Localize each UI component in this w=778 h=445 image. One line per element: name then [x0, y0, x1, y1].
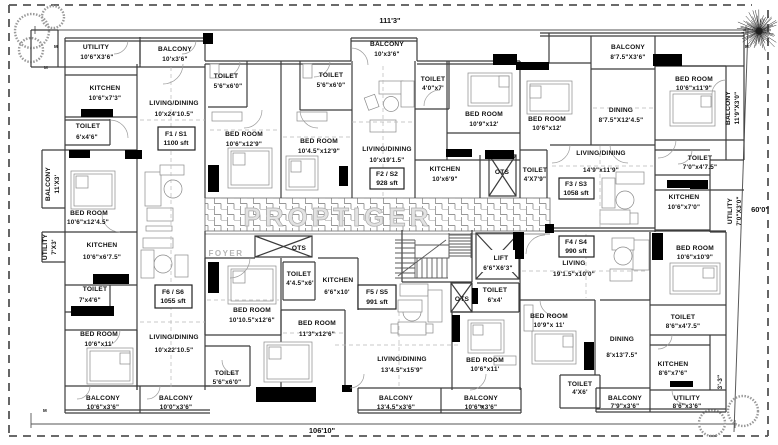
- svg-text:BED ROOM: BED ROOM: [530, 313, 568, 320]
- svg-text:3'-3": 3'-3": [717, 375, 724, 390]
- svg-text:7'x4'6": 7'x4'6": [79, 297, 101, 304]
- svg-text:OTS: OTS: [495, 169, 510, 176]
- svg-text:M: M: [43, 408, 47, 413]
- svg-text:11'3"x12'6": 11'3"x12'6": [299, 331, 335, 338]
- svg-text:BED ROOM: BED ROOM: [80, 331, 118, 338]
- svg-text:BED ROOM: BED ROOM: [233, 307, 271, 314]
- svg-text:10'6"x7'0": 10'6"x7'0": [668, 204, 700, 211]
- svg-text:10'x3'6": 10'x3'6": [162, 56, 188, 63]
- svg-text:10'0"x3'6": 10'0"x3'6": [160, 404, 192, 411]
- svg-text:4'4.5"x6': 4'4.5"x6': [286, 280, 314, 287]
- svg-text:6'x4'6": 6'x4'6": [76, 134, 98, 141]
- svg-text:8'7.5"X3'6": 8'7.5"X3'6": [610, 54, 645, 61]
- svg-text:19'1.5"x10'0": 19'1.5"x10'0": [553, 271, 595, 278]
- svg-text:BALCONY: BALCONY: [608, 395, 642, 402]
- svg-text:1055 sft: 1055 sft: [160, 298, 186, 305]
- svg-text:F6 / S6: F6 / S6: [162, 289, 184, 296]
- svg-text:6'6"x10': 6'6"x10': [324, 289, 350, 296]
- svg-text:UTILITY: UTILITY: [674, 395, 701, 402]
- svg-text:10'6"x12'4.5": 10'6"x12'4.5": [67, 219, 109, 226]
- svg-text:KITCHEN: KITCHEN: [87, 242, 118, 249]
- svg-text:KITCHEN: KITCHEN: [323, 277, 354, 284]
- svg-text:KITCHEN: KITCHEN: [669, 194, 700, 201]
- svg-text:TOILET: TOILET: [483, 287, 508, 294]
- svg-text:TOILET: TOILET: [76, 123, 101, 130]
- svg-text:10'6"X3'6": 10'6"X3'6": [80, 54, 113, 61]
- svg-text:BALCONY: BALCONY: [464, 395, 498, 402]
- svg-text:8'7.5"X12'4.5": 8'7.5"X12'4.5": [599, 117, 644, 124]
- svg-text:5'6"x6'0": 5'6"x6'0": [214, 83, 243, 90]
- svg-text:10'6"x11': 10'6"x11': [471, 366, 500, 373]
- svg-text:LIVING/DINING: LIVING/DINING: [149, 100, 199, 107]
- svg-text:14'9"x11'9": 14'9"x11'9": [583, 167, 619, 174]
- svg-text:10'6"x6'7.5": 10'6"x6'7.5": [83, 254, 121, 261]
- svg-text:KITCHEN: KITCHEN: [90, 85, 121, 92]
- svg-text:10'9"x 11': 10'9"x 11': [534, 322, 565, 329]
- svg-text:60'0": 60'0": [751, 205, 769, 214]
- svg-text:OTS: OTS: [292, 245, 307, 252]
- svg-text:1100 sft: 1100 sft: [164, 140, 190, 147]
- svg-text:BALCONY: BALCONY: [159, 395, 193, 402]
- svg-text:F3 / S3: F3 / S3: [565, 181, 587, 188]
- svg-text:106'10": 106'10": [309, 426, 336, 435]
- svg-text:LIVING/DINING: LIVING/DINING: [149, 334, 199, 341]
- svg-text:DINING: DINING: [609, 107, 633, 114]
- svg-text:LIVING/DINING: LIVING/DINING: [362, 146, 412, 153]
- svg-text:4'0"x7': 4'0"x7': [422, 85, 444, 92]
- svg-text:F1 / S1: F1 / S1: [165, 131, 187, 138]
- svg-text:UTILITY: UTILITY: [727, 197, 734, 224]
- svg-text:5'6"x6'0": 5'6"x6'0": [317, 82, 346, 89]
- svg-text:OTS: OTS: [455, 296, 470, 303]
- svg-text:7'0"X3'0": 7'0"X3'0": [736, 196, 743, 225]
- svg-text:BED ROOM: BED ROOM: [298, 320, 336, 327]
- svg-text:FOYER: FOYER: [208, 249, 243, 258]
- svg-text:10'x6'9": 10'x6'9": [432, 176, 458, 183]
- svg-text:10'6"x3'6": 10'6"x3'6": [87, 404, 119, 411]
- svg-text:6'x4': 6'x4': [488, 297, 503, 304]
- svg-text:10'6"x12'9": 10'6"x12'9": [226, 141, 262, 148]
- svg-text:TOILET: TOILET: [568, 381, 593, 388]
- svg-text:BALCONY: BALCONY: [158, 46, 192, 53]
- svg-text:BED ROOM: BED ROOM: [528, 116, 566, 123]
- svg-text:10'6"x7'3": 10'6"x7'3": [89, 95, 121, 102]
- svg-text:UTILITY: UTILITY: [83, 44, 110, 51]
- svg-text:BED ROOM: BED ROOM: [225, 131, 263, 138]
- svg-text:PROPTIGER: PROPTIGER: [243, 202, 432, 232]
- svg-text:TOILET: TOILET: [83, 286, 108, 293]
- svg-text:LIFT: LIFT: [494, 255, 509, 262]
- svg-text:BED ROOM: BED ROOM: [300, 138, 338, 145]
- svg-text:928 sft: 928 sft: [376, 180, 398, 187]
- svg-text:10'x19'1.5": 10'x19'1.5": [370, 157, 405, 164]
- svg-text:10'6"x11'9": 10'6"x11'9": [676, 85, 712, 92]
- svg-text:KITCHEN: KITCHEN: [658, 361, 689, 368]
- svg-text:TOILET: TOILET: [671, 314, 696, 321]
- svg-text:13'4.5"x3'6": 13'4.5"x3'6": [377, 404, 415, 411]
- svg-text:BED ROOM: BED ROOM: [676, 245, 714, 252]
- svg-text:8'6"x3'6": 8'6"x3'6": [673, 403, 702, 410]
- svg-text:4'X6': 4'X6': [572, 389, 588, 396]
- svg-text:BED ROOM: BED ROOM: [465, 111, 503, 118]
- svg-text:13'4.5"x15'9": 13'4.5"x15'9": [381, 367, 423, 374]
- svg-text:10'6"x10'9": 10'6"x10'9": [677, 254, 713, 261]
- svg-text:11'X3': 11'X3': [54, 174, 61, 193]
- svg-text:BED ROOM: BED ROOM: [70, 210, 108, 217]
- svg-text:111'3": 111'3": [379, 16, 401, 25]
- svg-text:BED ROOM: BED ROOM: [675, 76, 713, 83]
- svg-text:LIVING/DINING: LIVING/DINING: [576, 150, 626, 157]
- svg-text:10'6"x11': 10'6"x11': [85, 341, 114, 348]
- svg-text:10'6"x3'6": 10'6"x3'6": [465, 404, 497, 411]
- svg-text:M: M: [745, 44, 749, 49]
- svg-text:10'x3'6": 10'x3'6": [374, 51, 400, 58]
- svg-text:F5 / S5: F5 / S5: [366, 289, 388, 296]
- svg-text:8'x13'7.5": 8'x13'7.5": [606, 352, 637, 359]
- svg-text:BALCONY: BALCONY: [725, 91, 732, 125]
- svg-text:TOILET: TOILET: [523, 167, 548, 174]
- svg-text:1058 sft: 1058 sft: [563, 190, 589, 197]
- svg-text:10'4.5"x12'9": 10'4.5"x12'9": [298, 148, 340, 155]
- svg-text:10'10.5"x12'6": 10'10.5"x12'6": [229, 317, 275, 324]
- svg-text:LIVING: LIVING: [562, 260, 585, 267]
- svg-text:5'6"x6'0": 5'6"x6'0": [213, 379, 242, 386]
- svg-text:7'X3': 7'X3': [51, 239, 58, 255]
- svg-text:TOILET: TOILET: [215, 370, 240, 377]
- svg-text:10'x24'10.5": 10'x24'10.5": [155, 111, 194, 118]
- svg-text:LIVING/DINING: LIVING/DINING: [377, 356, 427, 363]
- svg-text:7'0"x4'7.5": 7'0"x4'7.5": [683, 164, 717, 171]
- svg-text:7'9"x3'6": 7'9"x3'6": [611, 403, 640, 410]
- svg-text:TOILET: TOILET: [287, 271, 312, 278]
- svg-text:BED ROOM: BED ROOM: [466, 357, 504, 364]
- svg-text:4'X7'9": 4'X7'9": [524, 176, 546, 183]
- svg-text:BALCONY: BALCONY: [86, 395, 120, 402]
- svg-text:TOILET: TOILET: [688, 155, 713, 162]
- svg-text:BALCONY: BALCONY: [611, 44, 645, 51]
- svg-text:TOILET: TOILET: [319, 72, 344, 79]
- svg-text:8'6"x7'6": 8'6"x7'6": [659, 370, 688, 377]
- svg-text:10'x22'10.5": 10'x22'10.5": [155, 347, 194, 354]
- svg-text:TOILET: TOILET: [214, 73, 239, 80]
- svg-text:UTILITY: UTILITY: [42, 233, 49, 260]
- svg-text:991 sft: 991 sft: [366, 299, 388, 306]
- svg-text:8'6"x4'7.5": 8'6"x4'7.5": [666, 323, 700, 330]
- svg-text:990 sft: 990 sft: [565, 248, 587, 255]
- svg-text:TOILET: TOILET: [421, 76, 446, 83]
- svg-text:BALCONY: BALCONY: [370, 41, 404, 48]
- svg-text:10'6"x12': 10'6"x12': [532, 125, 561, 132]
- svg-text:BALCONY: BALCONY: [379, 395, 413, 402]
- svg-text:11'9"X3'0": 11'9"X3'0": [734, 92, 741, 125]
- svg-text:10'9"x12': 10'9"x12': [469, 121, 498, 128]
- svg-text:DINING: DINING: [610, 336, 634, 343]
- svg-text:F2 / S2: F2 / S2: [376, 171, 398, 178]
- svg-text:6'6"X6'3": 6'6"X6'3": [483, 265, 512, 272]
- svg-text:BALCONY: BALCONY: [45, 167, 52, 201]
- svg-text:KITCHEN: KITCHEN: [430, 166, 461, 173]
- svg-text:F4 / S4: F4 / S4: [565, 239, 587, 246]
